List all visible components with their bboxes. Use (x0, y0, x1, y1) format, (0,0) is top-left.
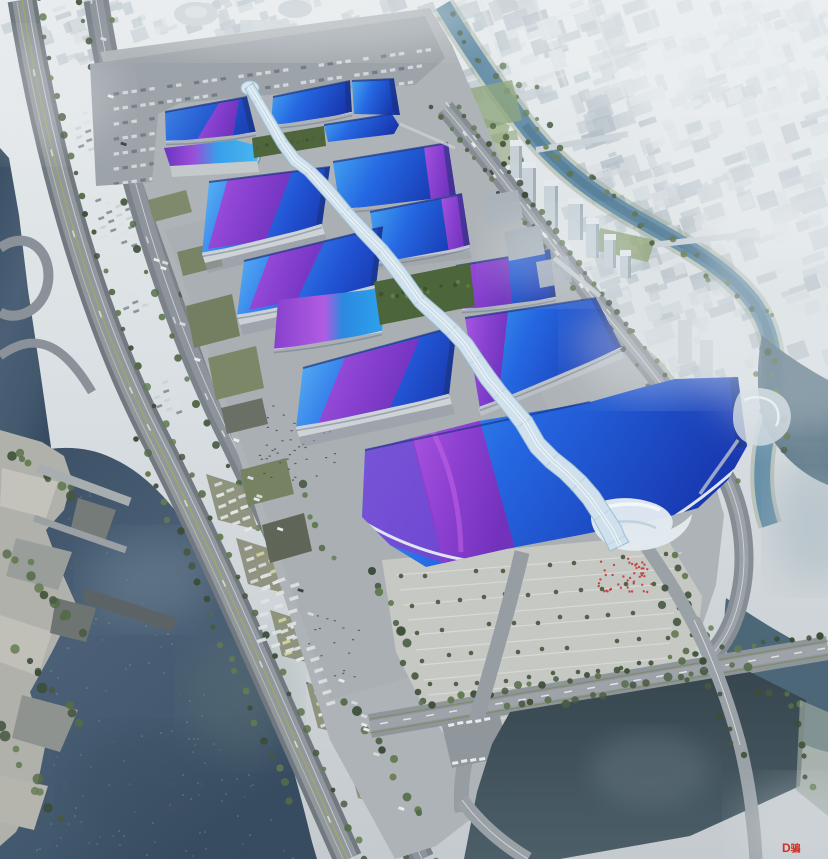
svg-text:D骗: D骗 (782, 841, 801, 855)
